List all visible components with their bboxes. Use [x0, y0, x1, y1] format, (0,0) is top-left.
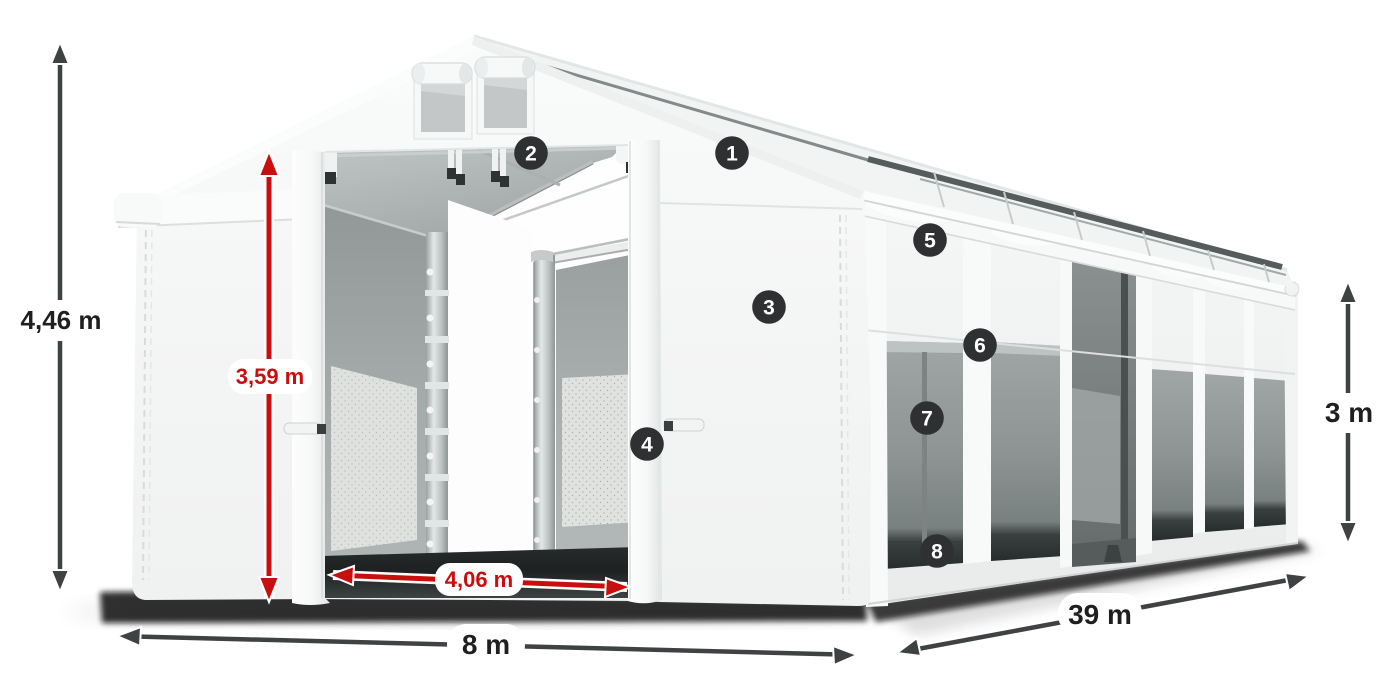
svg-text:2: 2	[525, 143, 537, 166]
svg-text:4: 4	[641, 434, 653, 457]
svg-text:39 m: 39 m	[1068, 599, 1132, 630]
svg-text:1: 1	[726, 143, 738, 166]
svg-text:8: 8	[931, 541, 943, 564]
svg-text:4,06 m: 4,06 m	[445, 567, 514, 592]
svg-text:8 m: 8 m	[462, 629, 510, 660]
svg-text:3 m: 3 m	[1325, 397, 1373, 428]
svg-text:3: 3	[763, 297, 775, 320]
svg-text:7: 7	[921, 408, 933, 431]
svg-text:6: 6	[974, 335, 986, 358]
svg-text:4,46 m: 4,46 m	[21, 305, 102, 335]
svg-text:3,59 m: 3,59 m	[236, 364, 305, 389]
svg-text:5: 5	[924, 230, 936, 253]
